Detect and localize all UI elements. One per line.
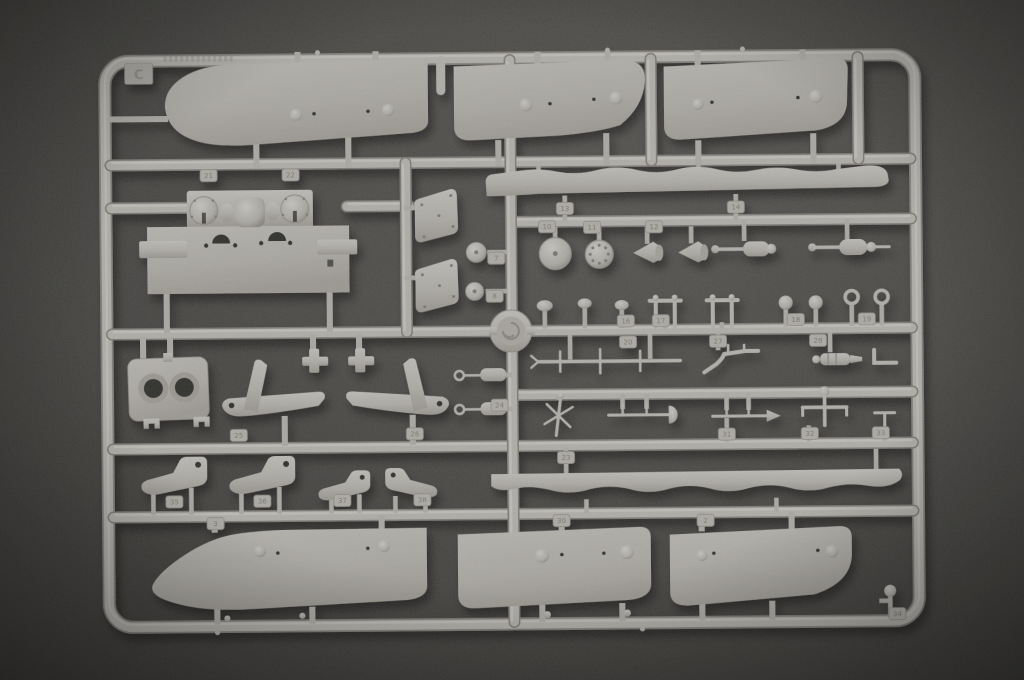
photo-canvas: C — [0, 0, 1024, 680]
vignette — [0, 0, 1024, 680]
sprue-photo: C — [0, 0, 1024, 680]
